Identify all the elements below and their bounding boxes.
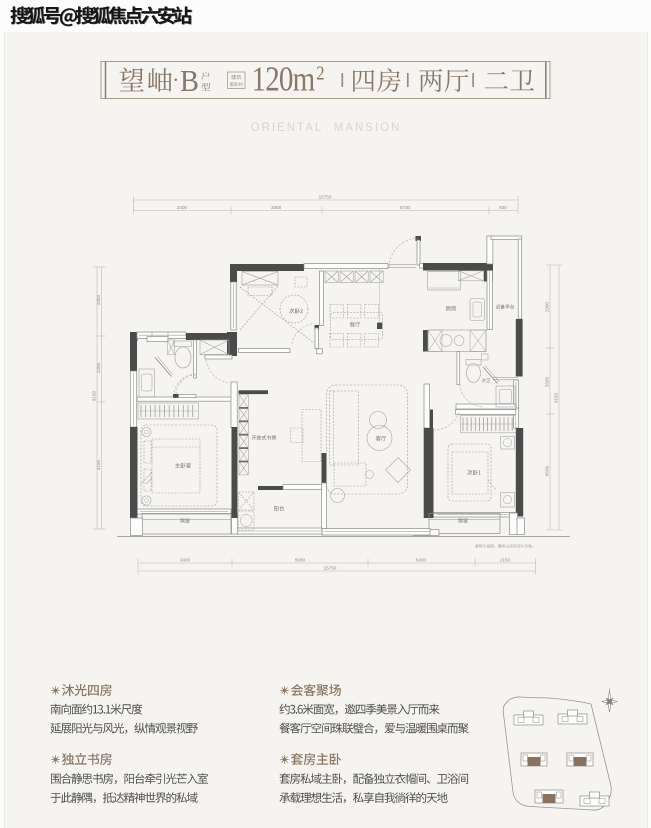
svg-text:B: B [180,63,199,98]
svg-text:6500: 6500 [544,465,549,476]
svg-text:2150: 2150 [500,557,511,562]
svg-text:3358: 3358 [271,205,282,210]
svg-text:930: 930 [499,205,507,210]
svg-text:15750: 15750 [319,194,332,199]
svg-text:3400: 3400 [180,557,191,562]
svg-text:2900: 2900 [544,301,549,312]
svg-text:15750: 15750 [324,565,337,570]
svg-text:3300: 3300 [544,376,549,387]
svg-text:5730: 5730 [400,205,411,210]
svg-text:5400: 5400 [416,557,427,562]
svg-text:5080: 5080 [295,557,306,562]
svg-text:2400: 2400 [96,362,101,373]
svg-text:9150: 9150 [92,390,97,401]
svg-text:2350: 2350 [96,294,101,305]
svg-text:9150: 9150 [553,392,558,403]
svg-text:4150: 4150 [96,459,101,470]
svg-text:2: 2 [316,62,324,84]
svg-text:3400: 3400 [177,205,188,210]
svg-text:ORIENTAL MANSION: ORIENTAL MANSION [251,122,402,134]
svg-text:120m: 120m [252,59,316,98]
